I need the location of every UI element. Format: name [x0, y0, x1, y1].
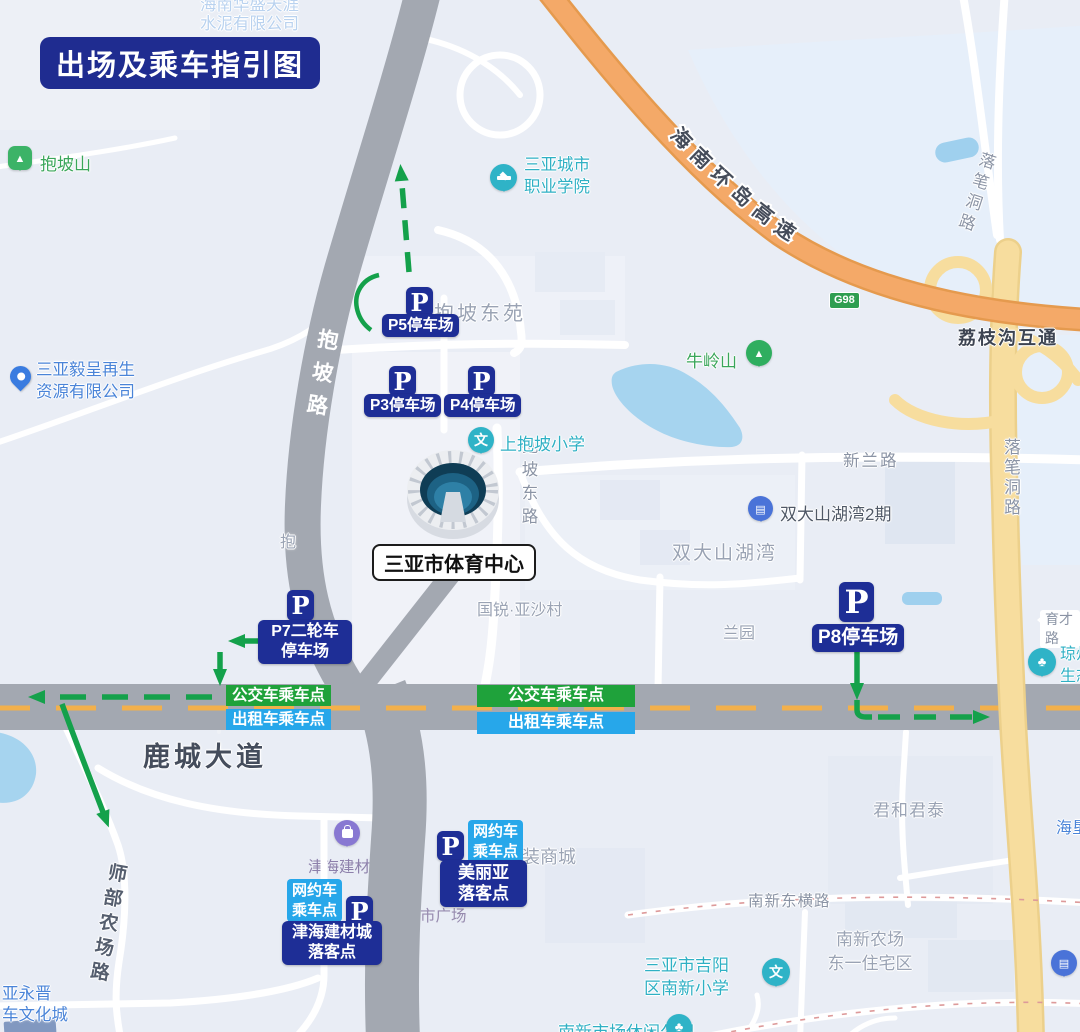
p5-badge: P	[406, 287, 433, 317]
niulingshan-mountain-icon	[746, 340, 772, 366]
yongjin-auto-city-label: 亚永晋车文化城	[2, 984, 68, 1026]
bus-boarding-west-banner: 公交车乘车点	[226, 685, 331, 706]
lizhigou-interchange-label: 荔枝沟互通	[958, 324, 1058, 350]
g98-shield: G98	[829, 292, 860, 309]
taxi-boarding-center-banner: 出租车乘车点	[477, 712, 635, 734]
meilia-p-badge: P	[437, 831, 464, 861]
recycle-company-label: 三亚毅呈再生资源有限公司	[36, 359, 135, 403]
shuangda-lakebay-label: 双大山湖湾	[672, 538, 777, 565]
cement-company-label: 海南华盛天涯水泥有限公司	[200, 0, 299, 34]
taxi-boarding-west-banner: 出租车乘车点	[226, 709, 331, 730]
shuangda-phase2-label: 双大山湖湾2期	[780, 500, 891, 525]
stadium-name-label: 三亚市体育中心	[372, 544, 536, 581]
shuangda-phase2-building-icon	[748, 496, 773, 521]
road-luobidong-south-label: 落笔洞路	[998, 438, 1023, 518]
guorui-village-label: 国锐·亚沙村	[477, 596, 562, 620]
p8-parking-label: P8停车场	[812, 624, 904, 652]
p4-badge: P	[468, 366, 495, 396]
nanxin-school-label: 三亚市吉阳区南新小学	[644, 954, 729, 1000]
nanxin-residence-label: 南新农场东一住宅区	[815, 928, 925, 976]
shangcheng-label: 装商城	[522, 843, 576, 869]
meilia-dropoff-label: 美丽亚落客点	[440, 860, 527, 907]
rideshare-point-west-label: 网约车乘车点	[287, 879, 342, 922]
junhe-juntai-label: 君和君泰	[873, 796, 945, 821]
map-canvas[interactable]: 津海建材市 津海建材市广场	[0, 0, 1080, 1032]
qiong-eco-icon	[1028, 648, 1056, 676]
lanyuan-label: 兰园	[723, 619, 755, 643]
bus-boarding-center-banner: 公交车乘车点	[477, 685, 635, 707]
haiken-label: 海垦	[1056, 814, 1080, 838]
niulingshan-label: 牛岭山	[686, 347, 737, 372]
jinhai-dropoff-label: 津海建材城落客点	[282, 921, 382, 965]
nanxin-school-icon	[762, 958, 790, 986]
road-xinlan-label: 新兰路	[843, 447, 899, 471]
rideshare-point-east-label: 网约车乘车点	[468, 820, 523, 863]
page-title: 出场及乘车指引图	[40, 37, 320, 89]
right-edge-building-icon	[1051, 950, 1077, 976]
baoposhan-label: 抱坡山	[40, 150, 91, 175]
p7-parking-label: P7二轮车停车场	[258, 620, 352, 664]
vocational-college-label: 三亚城市职业学院	[524, 154, 590, 198]
vocational-college-icon	[490, 164, 517, 191]
p5-parking-label: P5停车场	[382, 314, 459, 337]
road-lucheng-label: 鹿城大道	[143, 735, 267, 774]
qiong-eco-label: 琼州生态	[1060, 644, 1080, 688]
p4-parking-label: P4停车场	[444, 394, 521, 417]
jinhai-market-bag-icon	[334, 820, 360, 846]
road-yucai-sign: 育才路	[1040, 610, 1080, 648]
baoposhan-mountain-icon	[8, 146, 32, 170]
p3-parking-label: P3停车场	[364, 394, 441, 417]
road-nanxin-east-label: 南新东横路	[748, 889, 831, 911]
p8-badge: P	[839, 582, 874, 622]
shangbaopo-school-label: 上抱坡小学	[500, 430, 585, 455]
road-baopo-partial-label: 抱	[280, 528, 296, 552]
stadium-icon	[402, 442, 504, 546]
p7-badge: P	[287, 590, 314, 621]
p3-badge: P	[389, 366, 416, 396]
